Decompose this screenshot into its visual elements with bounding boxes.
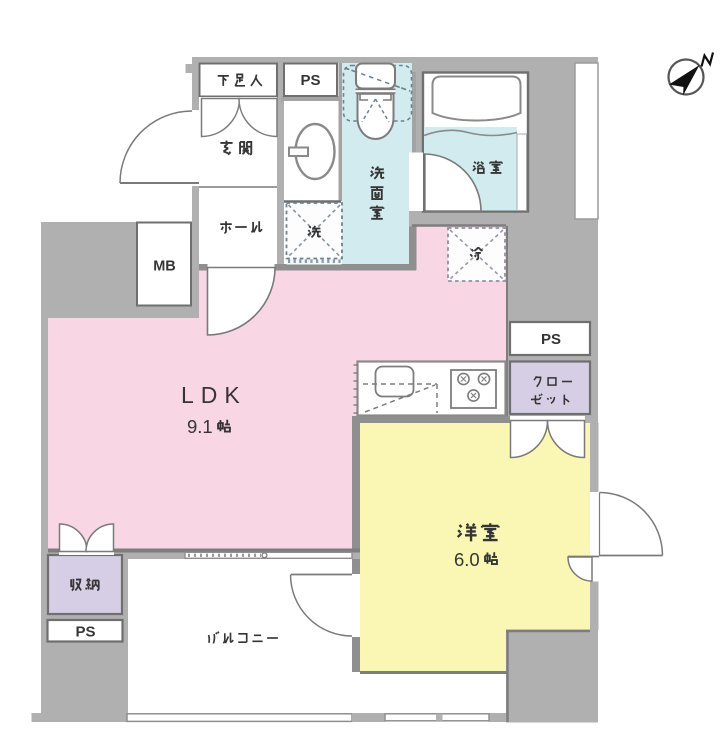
svg-text:PS: PS [541,331,561,348]
svg-text:PS: PS [75,624,95,641]
svg-text:PS: PS [300,72,320,89]
svg-text:6.0: 6.0 [454,549,480,570]
svg-text:MB: MB [153,259,176,275]
svg-text:9.1: 9.1 [187,416,213,437]
svg-text:LDK: LDK [181,382,247,408]
